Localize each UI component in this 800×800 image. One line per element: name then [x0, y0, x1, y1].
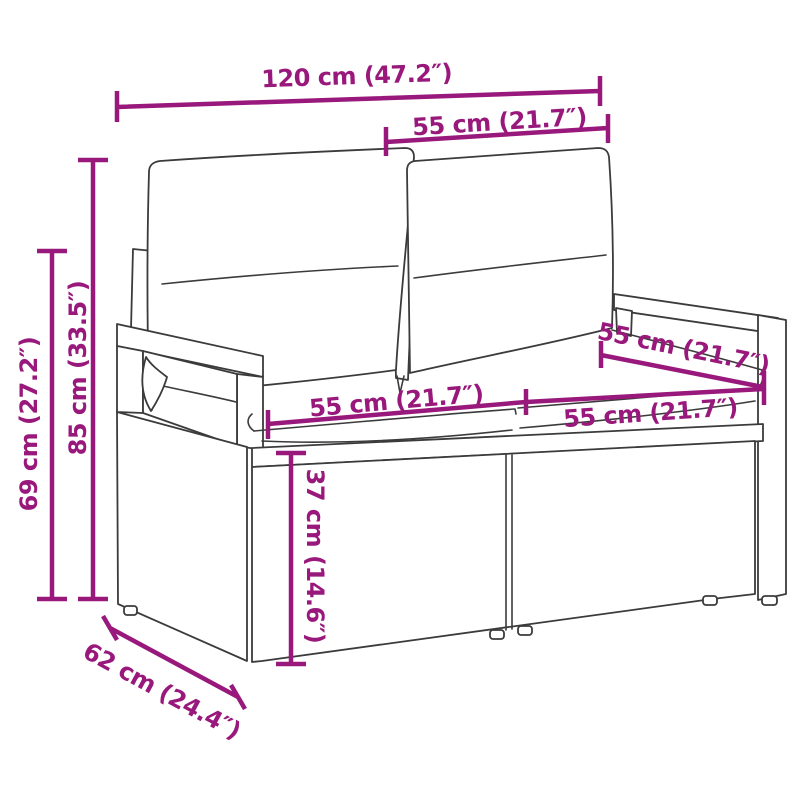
- dimension-label-base-depth: 62 cm (24.4″): [78, 637, 245, 745]
- dimension-backrest-width: 55 cm (21.7″): [386, 103, 608, 156]
- dimension-seat-width-left: 55 cm (21.7″): [268, 379, 526, 439]
- dimension-total-height: 85 cm (33.5″): [64, 160, 108, 599]
- bench-foot: [518, 626, 532, 635]
- left-armrest-rear-post: [237, 374, 263, 450]
- dimension-label-total-height: 85 cm (33.5″): [64, 281, 92, 456]
- dimension-armrest-height: 69 cm (27.2″): [15, 251, 67, 599]
- bench-foot: [490, 630, 504, 639]
- dimension-label-seat-height: 37 cm (14.6″): [301, 469, 329, 644]
- dimension-label-armrest-height: 69 cm (27.2″): [15, 337, 43, 512]
- bench-foot: [124, 606, 137, 615]
- dimension-label-total-width: 120 cm (47.2″): [261, 59, 453, 94]
- bench-foot: [762, 596, 777, 605]
- left-armrest-front-post: [117, 346, 143, 413]
- bench-body: [117, 412, 763, 662]
- bench-foot: [703, 596, 717, 605]
- left-side-panel: [117, 412, 247, 661]
- dimension-label-seat-width-left: 55 cm (21.7″): [308, 379, 484, 422]
- bench-dimension-drawing: 120 cm (47.2″) 55 cm (21.7″) 85 cm (33.5…: [0, 0, 800, 800]
- dimension-label-backrest-width: 55 cm (21.7″): [411, 103, 587, 142]
- back-cushion-right: [407, 148, 613, 373]
- product-dimension-diagram: 120 cm (47.2″) 55 cm (21.7″) 85 cm (33.5…: [0, 0, 800, 800]
